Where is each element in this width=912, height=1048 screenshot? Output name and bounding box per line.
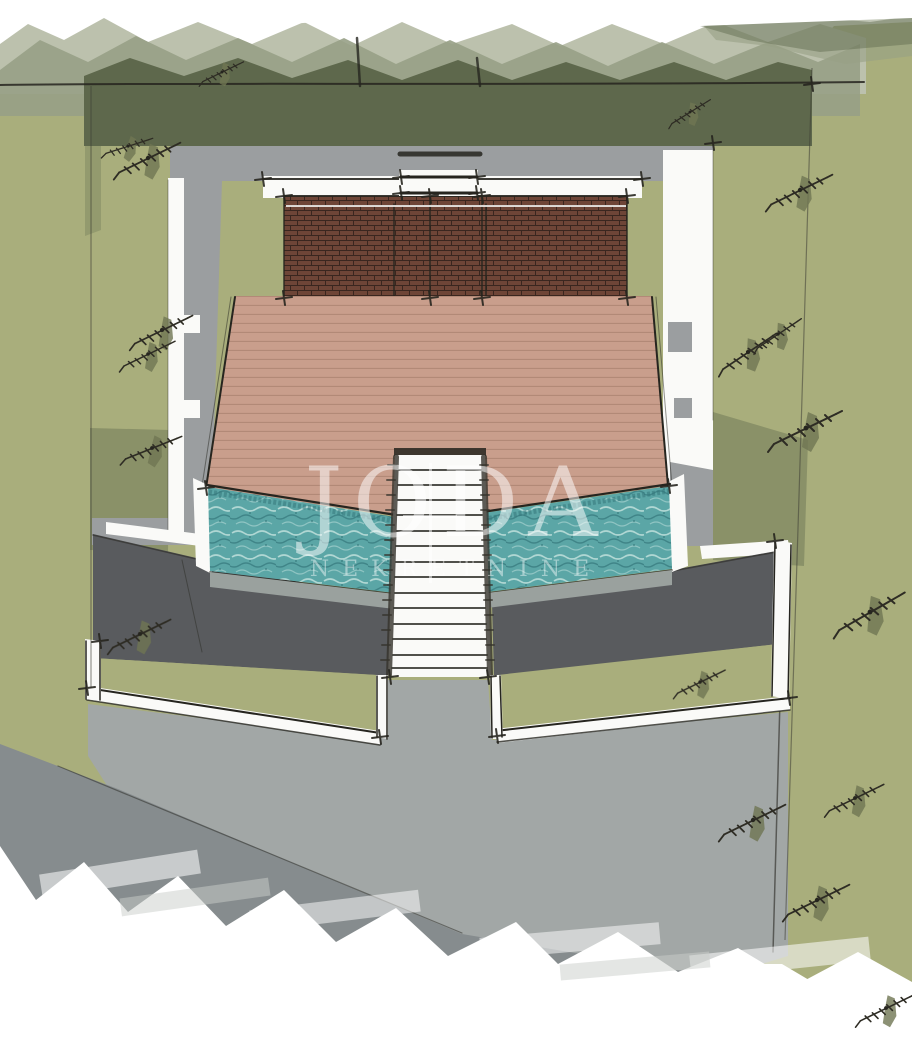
pergola-roof-right-wing xyxy=(482,196,627,298)
stair-run xyxy=(388,455,491,677)
central-staircase xyxy=(381,448,494,677)
wall-notch xyxy=(184,400,200,418)
site-plan-rendering: JODA NEKRETNINE xyxy=(0,0,912,1048)
stair-side-wall-left xyxy=(376,675,388,739)
concrete-patch xyxy=(668,322,692,352)
site-plan-canvas xyxy=(0,0,912,1048)
stair-top-landing-line xyxy=(394,448,486,456)
plot-wall-white-left xyxy=(168,178,184,537)
concrete-patch xyxy=(674,398,692,418)
